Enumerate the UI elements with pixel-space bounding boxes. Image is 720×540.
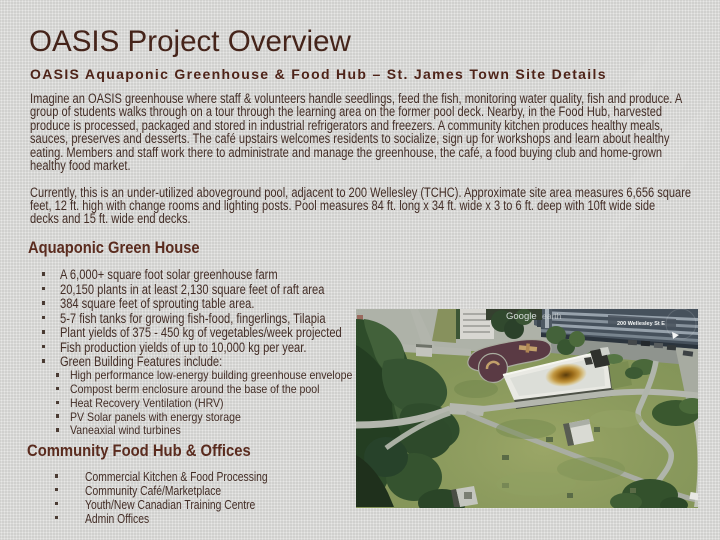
svg-text:Google: Google (506, 311, 537, 322)
svg-text:earth: earth (542, 311, 562, 321)
svg-text:200 Wellesley St E: 200 Wellesley St E (617, 321, 665, 327)
